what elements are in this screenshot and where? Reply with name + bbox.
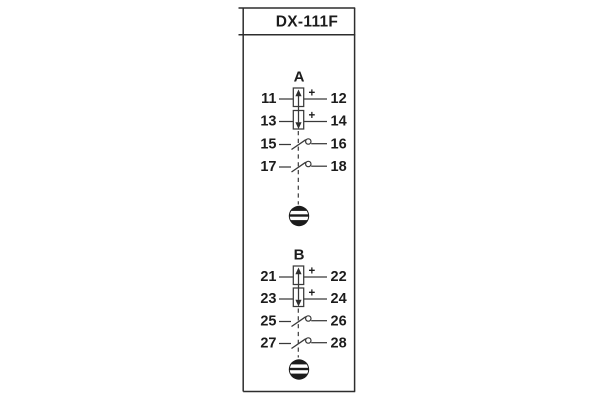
terminal-label-left: 23 [260, 291, 276, 307]
switch-contact-icon [292, 338, 311, 349]
relay-panel-frame: DX-111F [239, 8, 356, 392]
switch-contact-icon [292, 161, 311, 172]
polarity-plus-label: + [308, 110, 315, 122]
coil-row: 23 + 24 [260, 288, 346, 307]
device-model-label: DX-111F [276, 13, 338, 30]
contact-row: 17 18 [260, 159, 346, 175]
switch-contact-icon [292, 316, 311, 327]
section-a-label: A [294, 69, 305, 86]
diagram-canvas: DX-111F A 11 + 12 13 + 14 [0, 0, 600, 400]
polarity-plus-label: + [308, 288, 315, 300]
terminal-label-right: 26 [331, 314, 347, 330]
coil-row: 13 + 14 [260, 110, 346, 129]
coil-row: 21 + 22 [260, 266, 346, 285]
terminal-label-right: 18 [331, 159, 347, 175]
polarity-plus-label: + [308, 88, 315, 100]
terminal-label-right: 12 [331, 91, 347, 107]
terminal-label-left: 21 [260, 269, 276, 285]
terminal-label-right: 14 [331, 114, 347, 130]
relay-terminal-diagram: DX-111F A 11 + 12 13 + 14 [0, 0, 600, 400]
terminal-label-right: 24 [331, 291, 347, 307]
target-disc-icon [288, 359, 309, 379]
section-a: A 11 + 12 13 + 14 [260, 69, 346, 227]
terminal-label-left: 13 [260, 114, 276, 130]
terminal-label-left: 17 [260, 159, 276, 175]
polarity-plus-label: + [308, 266, 315, 278]
contact-row: 15 16 [260, 137, 346, 153]
contact-row: 27 28 [260, 336, 346, 352]
section-b-label: B [294, 247, 305, 264]
terminal-label-left: 25 [260, 314, 276, 330]
switch-contact-icon [292, 139, 311, 150]
section-b: B 21 + 22 23 + 24 [260, 247, 346, 380]
terminal-label-left: 11 [261, 91, 276, 107]
coil-row: 11 + 12 [261, 88, 346, 107]
terminal-label-right: 22 [331, 269, 347, 285]
terminal-label-right: 28 [331, 336, 347, 352]
target-disc-icon [288, 206, 309, 226]
terminal-label-left: 27 [260, 336, 276, 352]
contact-row: 25 26 [260, 314, 346, 330]
terminal-label-right: 16 [331, 137, 347, 153]
terminal-label-left: 15 [260, 137, 276, 153]
